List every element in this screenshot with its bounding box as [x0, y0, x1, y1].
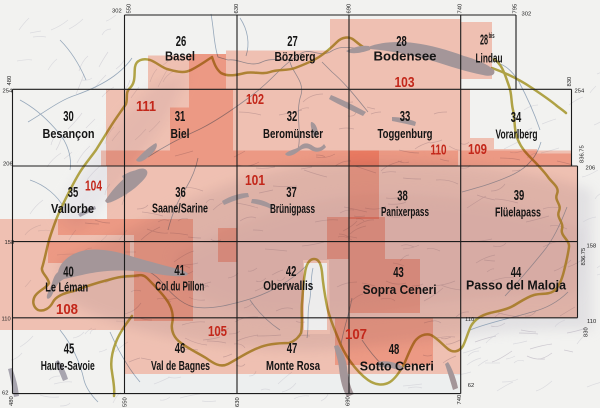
svg-text:Vallorbe: Vallorbe — [51, 201, 94, 216]
svg-text:Col du Pillon: Col du Pillon — [155, 279, 204, 294]
svg-text:Haute-Savoie: Haute-Savoie — [41, 358, 95, 373]
svg-text:27: 27 — [287, 33, 298, 50]
svg-text:37: 37 — [286, 184, 297, 201]
svg-text:302: 302 — [112, 9, 122, 15]
svg-text:104: 104 — [85, 178, 102, 195]
svg-text:836.75: 836.75 — [581, 248, 587, 266]
svg-text:830: 830 — [584, 327, 590, 337]
svg-text:34: 34 — [511, 109, 522, 126]
svg-text:550: 550 — [123, 397, 129, 407]
svg-text:46: 46 — [175, 340, 186, 357]
svg-text:101: 101 — [245, 172, 265, 189]
svg-text:35: 35 — [68, 184, 79, 201]
svg-text:62: 62 — [468, 383, 474, 389]
svg-text:105: 105 — [208, 323, 227, 340]
svg-text:110: 110 — [465, 317, 474, 323]
svg-text:32: 32 — [287, 108, 298, 125]
svg-text:bis: bis — [489, 31, 495, 40]
svg-text:690: 690 — [346, 396, 352, 406]
svg-text:Flüelapass: Flüelapass — [495, 205, 541, 220]
svg-text:102: 102 — [246, 91, 264, 108]
svg-text:111: 111 — [136, 98, 156, 115]
svg-text:550: 550 — [127, 4, 133, 14]
svg-text:43: 43 — [393, 264, 404, 281]
svg-text:31: 31 — [175, 108, 186, 125]
svg-text:Le Léman: Le Léman — [45, 280, 88, 295]
svg-text:206: 206 — [3, 162, 13, 168]
svg-text:Val de Bagnes: Val de Bagnes — [151, 358, 210, 373]
svg-text:254: 254 — [3, 89, 13, 95]
svg-text:Vorarlberg: Vorarlberg — [496, 127, 538, 142]
svg-text:Passo del Maloja: Passo del Maloja — [466, 278, 567, 293]
svg-text:830: 830 — [567, 77, 573, 87]
svg-text:690: 690 — [347, 4, 353, 14]
svg-text:62: 62 — [2, 390, 8, 396]
svg-text:107: 107 — [345, 326, 367, 343]
svg-text:Monte Rosa: Monte Rosa — [266, 358, 321, 373]
svg-text:Panixerpass: Panixerpass — [381, 204, 429, 219]
svg-text:33: 33 — [400, 108, 411, 125]
svg-text:Oberwallis: Oberwallis — [263, 278, 313, 293]
svg-text:110: 110 — [587, 319, 596, 325]
svg-text:Beromünster: Beromünster — [263, 126, 323, 141]
svg-text:740: 740 — [457, 395, 463, 405]
svg-text:Bodensee: Bodensee — [374, 49, 437, 64]
svg-text:795: 795 — [513, 4, 519, 14]
svg-text:Sopra Ceneri: Sopra Ceneri — [363, 282, 437, 297]
svg-text:45: 45 — [64, 340, 75, 357]
svg-text:Besançon: Besançon — [43, 126, 95, 141]
svg-text:836.75: 836.75 — [580, 145, 586, 163]
svg-text:28: 28 — [396, 33, 407, 50]
svg-text:480: 480 — [9, 396, 15, 406]
svg-text:41: 41 — [174, 262, 185, 279]
svg-text:108: 108 — [56, 301, 78, 318]
svg-text:39: 39 — [514, 187, 525, 204]
svg-text:Basel: Basel — [165, 49, 195, 64]
svg-text:630: 630 — [234, 4, 240, 14]
svg-text:28: 28 — [480, 31, 488, 48]
svg-text:254: 254 — [575, 89, 585, 95]
svg-text:110: 110 — [431, 142, 447, 159]
svg-text:158: 158 — [5, 240, 15, 246]
svg-text:Bözberg: Bözberg — [275, 49, 316, 64]
svg-text:Toggenburg: Toggenburg — [378, 126, 433, 141]
svg-text:26: 26 — [176, 33, 187, 50]
svg-text:30: 30 — [63, 108, 74, 125]
svg-text:Lindau: Lindau — [476, 50, 503, 65]
svg-text:Biel: Biel — [171, 126, 190, 141]
svg-text:Brünigpass: Brünigpass — [270, 201, 315, 216]
svg-text:206: 206 — [586, 165, 596, 171]
svg-text:38: 38 — [397, 188, 408, 205]
svg-text:109: 109 — [468, 141, 487, 158]
svg-text:103: 103 — [395, 74, 415, 91]
svg-text:48: 48 — [389, 341, 400, 358]
svg-text:480: 480 — [7, 76, 13, 86]
svg-text:110: 110 — [2, 317, 11, 323]
svg-text:740: 740 — [458, 4, 464, 14]
svg-text:302: 302 — [522, 11, 532, 17]
svg-text:Saane/Sarine: Saane/Sarine — [152, 201, 208, 216]
svg-text:40: 40 — [63, 263, 74, 280]
svg-text:36: 36 — [175, 184, 186, 201]
svg-text:630: 630 — [235, 397, 241, 407]
svg-text:47: 47 — [287, 340, 298, 357]
svg-text:158: 158 — [587, 243, 597, 249]
svg-text:Sotto Ceneri: Sotto Ceneri — [360, 359, 434, 374]
